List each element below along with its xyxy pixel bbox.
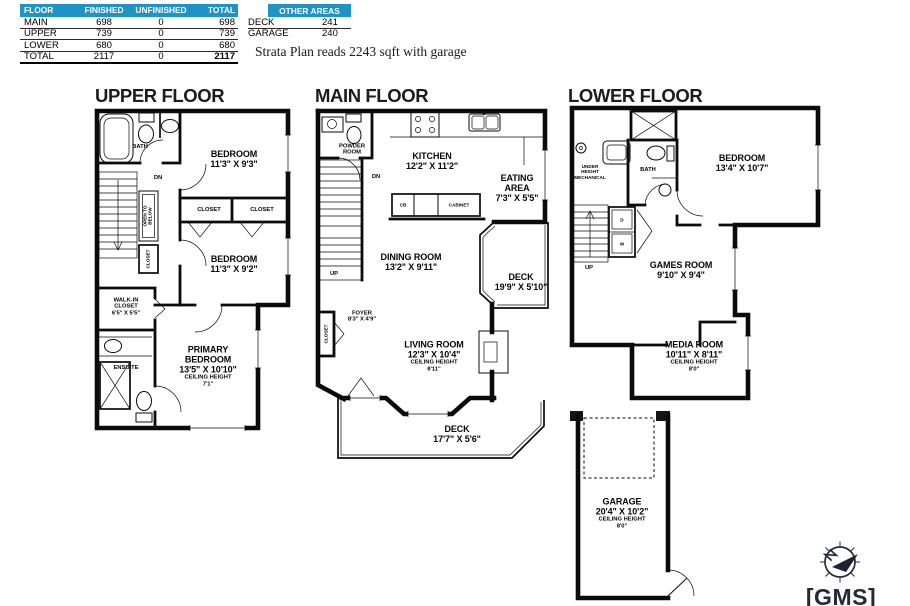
room-label-walkin-closet: WALK-IN CLOSET 6'5" X 5'5"	[112, 297, 140, 316]
cell-label: GARAGE	[248, 29, 322, 39]
room-label-deck-side: DECK 19'9" X 5'10"	[495, 272, 548, 292]
room-label-bath-lower: BATH	[640, 167, 656, 173]
cell-floor: UPPER	[20, 29, 78, 39]
other-areas-header: OTHER AREAS	[268, 4, 351, 17]
room-label-bedroom-2: BEDROOM 11'3" X 9'2"	[210, 254, 257, 274]
cell-unfinished: 0	[130, 18, 192, 28]
table-row-upper: UPPER 739 0 739	[20, 29, 238, 41]
cell-total: 698	[192, 18, 238, 28]
room-label-primary-bedroom: PRIMARY BEDROOM 13'5" X 10'10" CEILING H…	[179, 344, 236, 387]
stair-label-dn-main: DN	[372, 174, 380, 180]
upper-floor-title: UPPER FLOOR	[95, 85, 224, 107]
room-label-bath-upper: BATH	[132, 144, 148, 150]
floor-plan-page: FLOOR FINISHED UNFINISHED TOTAL MAIN 698…	[0, 0, 910, 606]
other-areas-row-deck: DECK 241	[248, 17, 351, 29]
cell-unfinished: 0	[130, 29, 192, 39]
appliance-label-washer: W	[620, 241, 624, 246]
other-areas-row-garage: GARAGE 240	[248, 29, 351, 40]
island-label-cabinet: CABINET	[449, 202, 470, 207]
strata-plan-note: Strata Plan reads 2243 sqft with garage	[255, 44, 466, 60]
other-areas-table: OTHER AREAS DECK 241 GARAGE 240	[248, 4, 351, 39]
island-label-cb: CB	[400, 202, 407, 207]
table-row-lower: LOWER 680 0 680	[20, 40, 238, 52]
label-open-to-below: OPEN TO BELOW	[143, 205, 154, 226]
room-label-games-room: GAMES ROOM 9'10" X 9'4"	[650, 260, 713, 280]
room-label-closet-vertical-upper: CLOSET	[145, 249, 150, 268]
appliance-label-dryer: D	[620, 217, 623, 222]
room-label-garage: GARAGE 20'4" X 10'2" CEILING HEIGHT 8'0"	[596, 496, 649, 529]
room-label-bedroom-1: BEDROOM 11'3" X 9'3"	[210, 149, 257, 169]
cell-value: 241	[322, 18, 351, 28]
floor-area-table-header: FLOOR FINISHED UNFINISHED TOTAL	[20, 4, 238, 17]
room-label-closet-a: CLOSET	[197, 207, 221, 213]
cell-finished: 680	[78, 41, 130, 51]
cell-finished: 698	[78, 18, 130, 28]
cell-unfinished: 0	[130, 52, 192, 62]
gms-logo-text: [GMS]	[804, 584, 878, 606]
room-label-kitchen: KITCHEN 12'2" X 11'2"	[406, 151, 458, 171]
stair-label-dn-upper: DN	[154, 175, 162, 181]
col-header-unfinished: UNFINISHED	[130, 6, 192, 14]
room-label-bedroom-lower: BEDROOM 13'4" X 10'7"	[716, 153, 769, 173]
cell-label: DECK	[248, 18, 322, 28]
cell-floor: LOWER	[20, 41, 78, 51]
room-label-powder-room: POWDER ROOM	[339, 144, 365, 157]
cell-finished: 739	[78, 29, 130, 39]
table-row-total: TOTAL 2117 0 2117	[20, 52, 238, 65]
cell-finished: 2117	[78, 52, 130, 62]
cell-total: 680	[192, 41, 238, 51]
room-label-dining-room: DINING ROOM 13'2" X 9'11"	[381, 252, 442, 272]
label-under-height-mechanical: UNDER HEIGHT MECHANICAL	[574, 164, 606, 180]
room-label-living-room: LIVING ROOM 12'3" X 10'4" CEILING HEIGHT…	[404, 339, 463, 372]
main-floor-title: MAIN FLOOR	[315, 85, 428, 107]
col-header-finished: FINISHED	[78, 6, 130, 14]
floor-area-table: FLOOR FINISHED UNFINISHED TOTAL MAIN 698…	[20, 4, 238, 64]
compass-icon	[820, 542, 860, 583]
col-header-total: TOTAL	[192, 6, 238, 14]
lower-floor-title: LOWER FLOOR	[568, 85, 702, 107]
room-label-eating-area: EATING AREA 7'3" X 5'5"	[496, 173, 539, 203]
cell-floor: MAIN	[20, 18, 78, 28]
cell-value: 240	[322, 29, 351, 39]
cell-total: 2117	[192, 52, 238, 62]
cell-total: 739	[192, 29, 238, 39]
room-label-closet-b: CLOSET	[250, 207, 274, 213]
stair-label-up-main: UP	[330, 271, 338, 277]
cell-floor: TOTAL	[20, 52, 78, 62]
room-label-foyer: FOYER 8'3" X 4'9"	[348, 311, 376, 324]
stair-label-up-lower: UP	[585, 265, 593, 271]
room-label-media-room: MEDIA ROOM 10'11" X 8'11" CEILING HEIGHT…	[665, 339, 723, 372]
cell-unfinished: 0	[130, 41, 192, 51]
col-header-floor: FLOOR	[20, 6, 78, 14]
table-row-main: MAIN 698 0 698	[20, 17, 238, 29]
room-label-closet-vertical-main: CLOSET	[323, 324, 328, 343]
room-label-deck-bottom: DECK 17'7" X 5'6"	[433, 424, 481, 444]
room-label-ensuite: ENSUITE	[113, 365, 138, 371]
